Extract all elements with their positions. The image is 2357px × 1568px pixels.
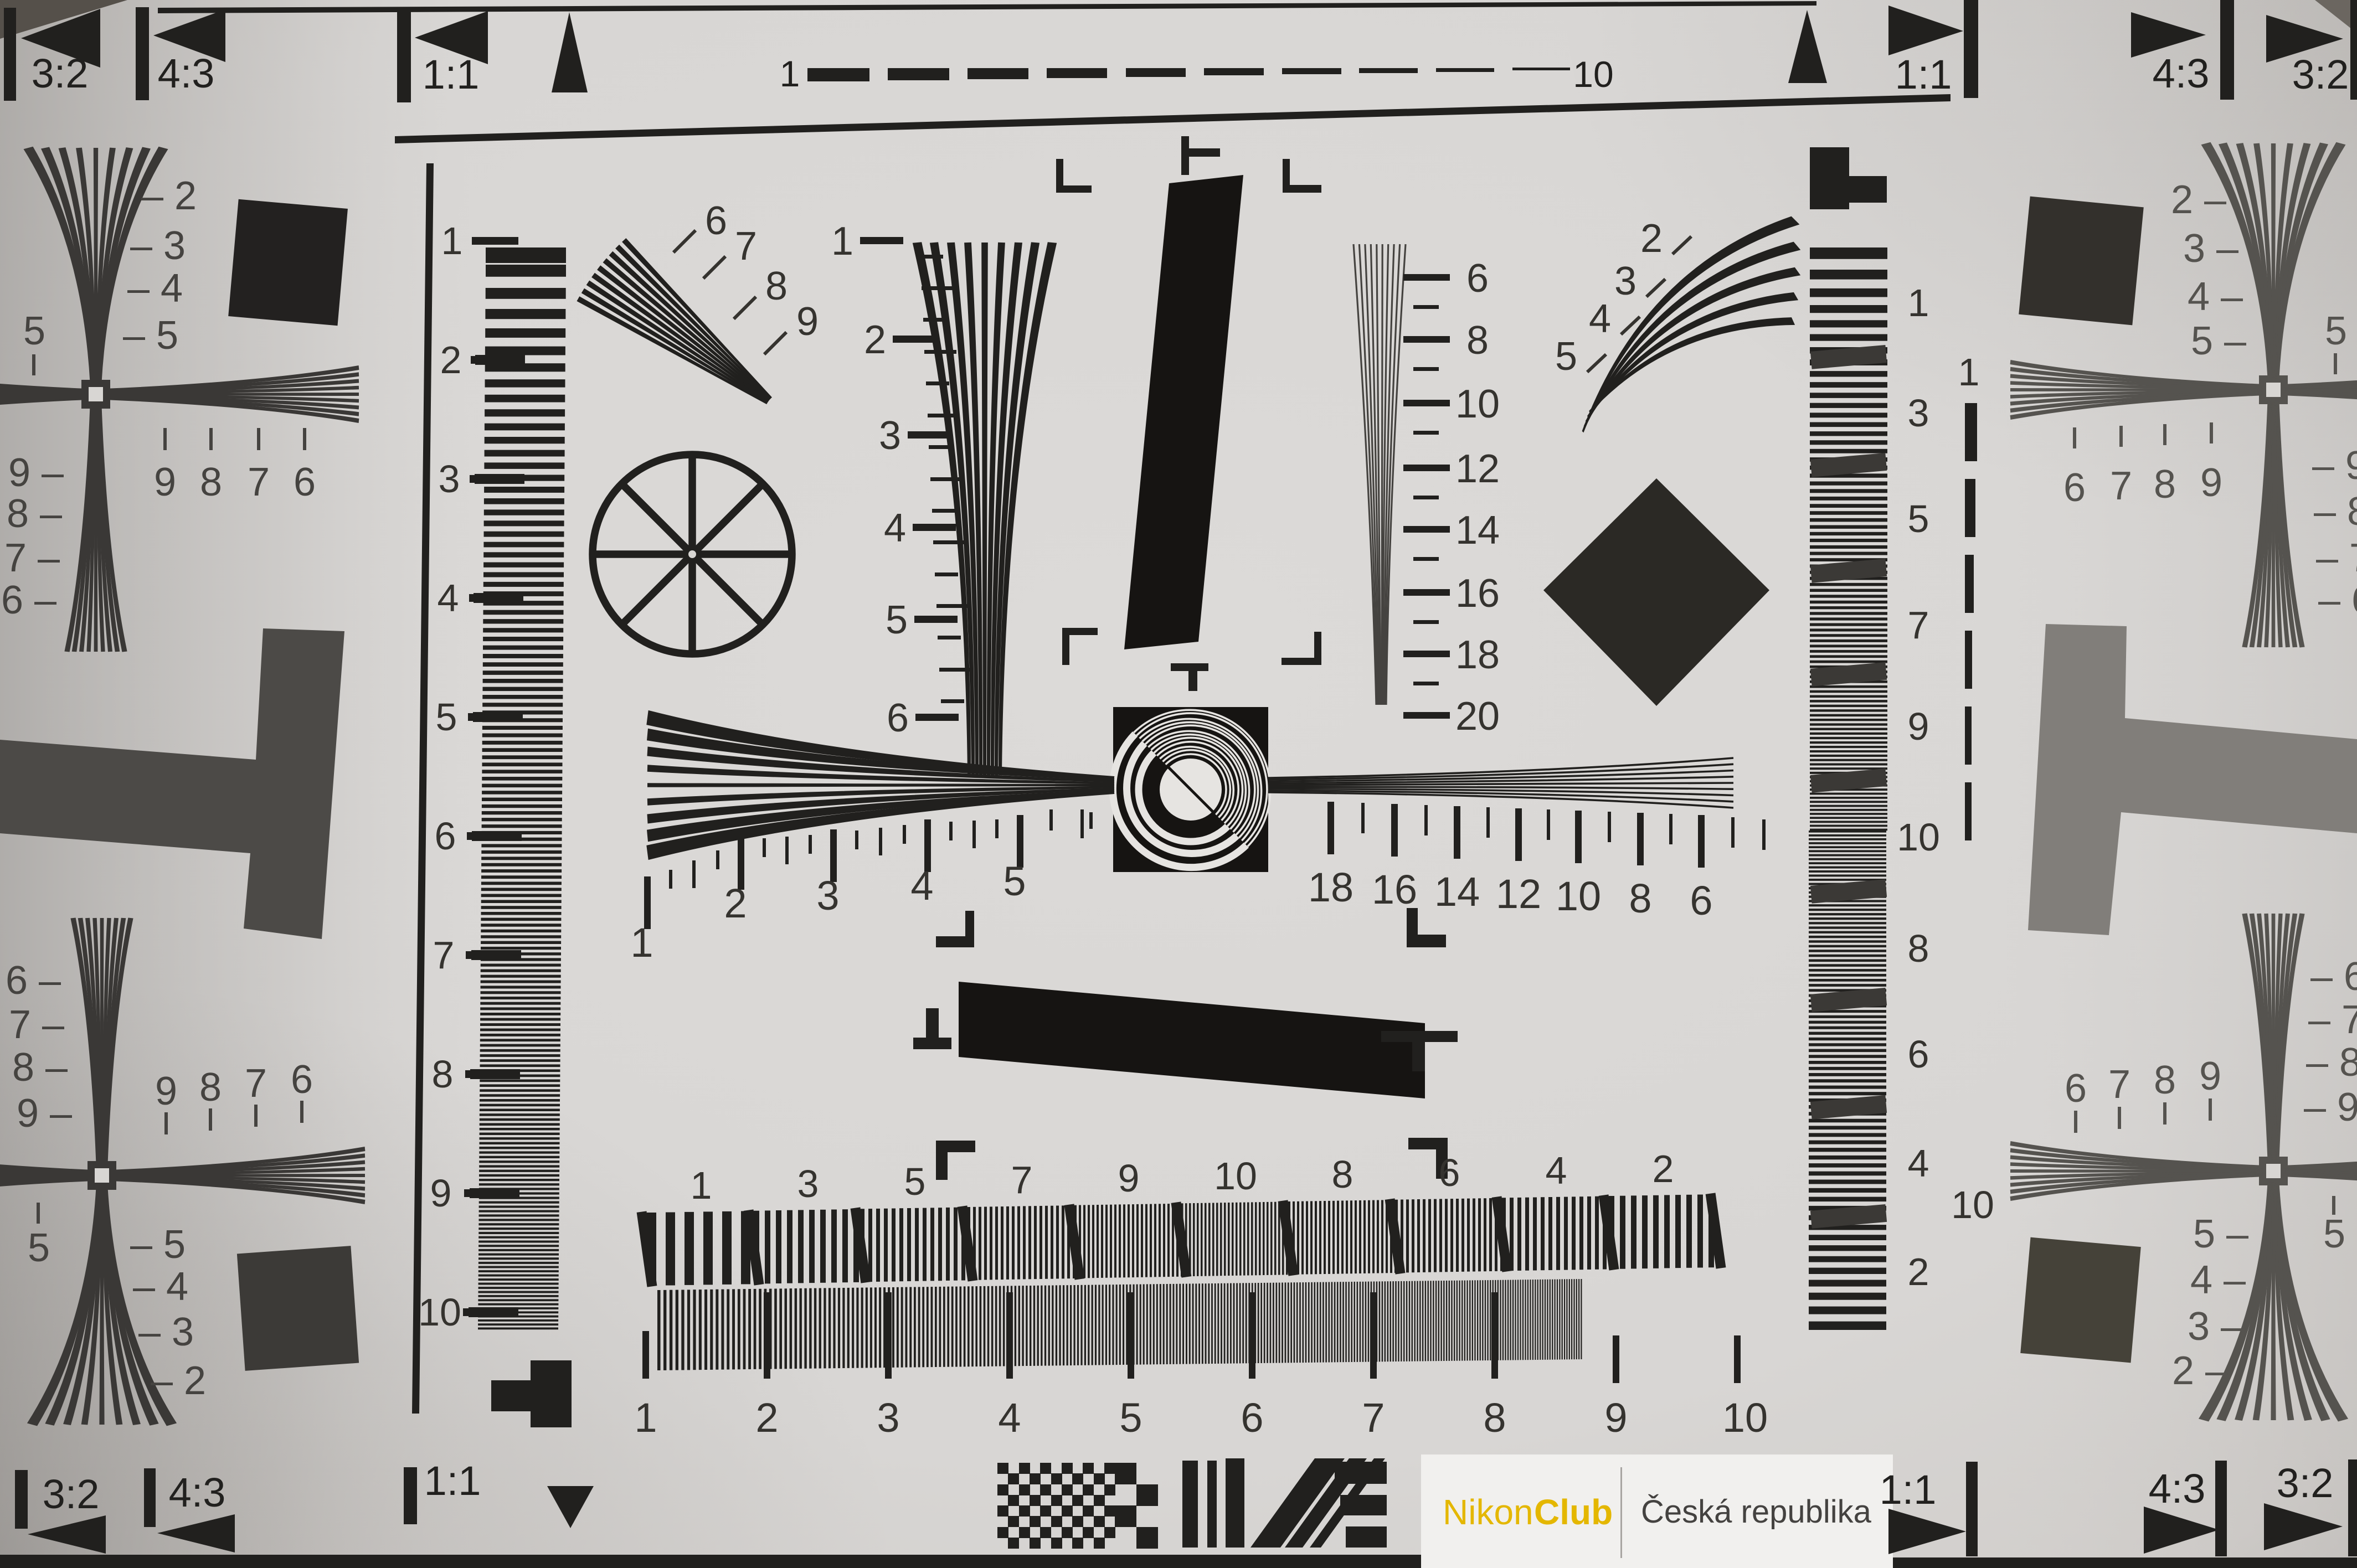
svg-text:20: 20 [1455, 694, 1500, 739]
svg-text:– 6: – 6 [2318, 578, 2357, 622]
svg-text:4:3: 4:3 [2149, 1466, 2206, 1512]
svg-text:– 3: – 3 [130, 224, 186, 268]
svg-text:1: 1 [691, 1164, 712, 1207]
svg-text:– 5: – 5 [123, 313, 178, 358]
svg-text:– 4: – 4 [133, 1265, 188, 1309]
svg-text:9 –: 9 – [17, 1091, 73, 1136]
svg-text:– 8: – 8 [2314, 489, 2357, 534]
svg-text:3:2: 3:2 [32, 50, 89, 96]
svg-text:2 –: 2 – [2172, 1349, 2228, 1393]
svg-text:10: 10 [1951, 1183, 1994, 1226]
svg-text:6: 6 [1439, 1151, 1460, 1194]
svg-text:4: 4 [884, 506, 906, 550]
svg-text:6: 6 [1690, 878, 1712, 924]
svg-text:16: 16 [1372, 866, 1417, 912]
svg-text:5: 5 [904, 1160, 926, 1203]
svg-text:5: 5 [436, 695, 457, 739]
svg-text:4: 4 [1546, 1149, 1567, 1192]
svg-text:8: 8 [2154, 1058, 2176, 1102]
svg-text:9: 9 [1908, 705, 1929, 748]
svg-text:9: 9 [2200, 461, 2222, 505]
svg-text:6: 6 [887, 696, 909, 740]
svg-text:2: 2 [755, 1395, 778, 1441]
svg-text:8: 8 [1908, 927, 1929, 970]
svg-text:5: 5 [886, 598, 908, 642]
svg-text:4:3: 4:3 [2153, 50, 2210, 96]
svg-text:2: 2 [440, 338, 462, 381]
svg-text:6: 6 [291, 1058, 313, 1102]
svg-text:6: 6 [294, 460, 316, 504]
svg-text:2: 2 [724, 880, 747, 926]
svg-text:10: 10 [1455, 382, 1500, 426]
svg-text:9 –: 9 – [8, 451, 64, 495]
svg-text:10: 10 [1573, 54, 1613, 95]
svg-text:7: 7 [245, 1061, 267, 1106]
svg-text:4: 4 [998, 1395, 1021, 1441]
svg-text:– 9: – 9 [2312, 443, 2357, 488]
svg-text:2: 2 [1640, 216, 1663, 261]
svg-text:8: 8 [1466, 318, 1489, 363]
svg-text:16: 16 [1455, 571, 1500, 616]
svg-text:8: 8 [2154, 462, 2176, 507]
svg-text:7: 7 [433, 933, 455, 977]
svg-text:12: 12 [1496, 871, 1541, 917]
svg-text:8 –: 8 – [12, 1045, 68, 1090]
svg-text:Club: Club [1534, 1492, 1613, 1532]
svg-text:5: 5 [2323, 1212, 2345, 1256]
svg-text:6: 6 [2065, 1066, 2087, 1111]
svg-text:5: 5 [1119, 1395, 1142, 1441]
svg-text:– 4: – 4 [127, 266, 183, 311]
svg-text:1: 1 [780, 53, 800, 94]
svg-text:5: 5 [1908, 497, 1929, 540]
svg-text:3: 3 [1614, 259, 1636, 303]
svg-text:10: 10 [1722, 1395, 1768, 1441]
svg-text:– 2: – 2 [151, 1359, 206, 1403]
svg-text:5: 5 [23, 309, 45, 353]
svg-text:– 2: – 2 [141, 174, 197, 218]
svg-text:2 –: 2 – [2171, 178, 2227, 222]
svg-text:– 7: – 7 [2308, 998, 2357, 1042]
svg-text:18: 18 [1308, 864, 1354, 910]
svg-text:3:2: 3:2 [43, 1471, 100, 1517]
svg-text:9: 9 [1604, 1395, 1627, 1441]
svg-text:8: 8 [432, 1053, 454, 1096]
svg-text:10: 10 [1214, 1154, 1257, 1198]
svg-text:8: 8 [1483, 1395, 1506, 1441]
svg-text:3 –: 3 – [2188, 1304, 2243, 1349]
svg-text:10: 10 [418, 1291, 461, 1334]
svg-text:3: 3 [439, 457, 460, 501]
svg-text:3: 3 [816, 873, 839, 919]
svg-text:5 –: 5 – [2191, 319, 2247, 363]
svg-text:Nikon: Nikon [1443, 1492, 1533, 1532]
svg-text:6 –: 6 – [1, 578, 57, 622]
svg-text:10: 10 [1556, 873, 1601, 919]
svg-text:3: 3 [877, 1395, 899, 1441]
svg-text:7 –: 7 – [9, 1003, 65, 1047]
svg-text:9: 9 [796, 300, 819, 344]
svg-text:9: 9 [155, 1069, 177, 1113]
svg-text:3: 3 [797, 1162, 819, 1205]
svg-text:1: 1 [634, 1395, 657, 1441]
svg-text:1:1: 1:1 [1880, 1467, 1937, 1513]
svg-text:4: 4 [910, 863, 933, 909]
svg-text:3 –: 3 – [2183, 226, 2239, 271]
svg-text:4: 4 [438, 576, 459, 620]
svg-text:5: 5 [28, 1226, 50, 1270]
svg-text:6 –: 6 – [6, 958, 61, 1003]
svg-text:6: 6 [435, 814, 456, 858]
svg-text:6: 6 [705, 199, 727, 243]
svg-text:7: 7 [2108, 1062, 2130, 1107]
svg-text:8 –: 8 – [7, 492, 63, 536]
svg-text:3:2: 3:2 [2277, 1460, 2334, 1506]
svg-text:2: 2 [1908, 1250, 1929, 1293]
svg-text:5: 5 [1555, 334, 1577, 379]
svg-text:2: 2 [1653, 1147, 1674, 1190]
svg-text:Česká republika: Česká republika [1641, 1494, 1872, 1530]
svg-text:5 –: 5 – [2193, 1212, 2249, 1256]
svg-text:12: 12 [1455, 447, 1500, 491]
svg-text:1: 1 [1958, 350, 1980, 394]
svg-text:7: 7 [2110, 464, 2132, 508]
svg-text:4:3: 4:3 [158, 50, 215, 96]
svg-text:– 3: – 3 [138, 1310, 194, 1354]
svg-text:14: 14 [1455, 508, 1500, 553]
svg-text:8: 8 [199, 1065, 222, 1110]
svg-text:9: 9 [1118, 1157, 1140, 1200]
svg-text:4 –: 4 – [2190, 1258, 2246, 1302]
svg-text:6: 6 [1466, 256, 1489, 301]
svg-text:4: 4 [1589, 297, 1611, 341]
svg-text:8: 8 [765, 264, 788, 308]
svg-text:– 9: – 9 [2304, 1085, 2357, 1129]
svg-text:10: 10 [1897, 816, 1940, 859]
svg-text:8: 8 [1332, 1153, 1354, 1196]
svg-text:1:1: 1:1 [1895, 51, 1952, 97]
svg-text:1: 1 [441, 219, 463, 262]
svg-text:1: 1 [1908, 281, 1929, 324]
svg-text:3: 3 [1908, 391, 1929, 435]
svg-text:5: 5 [1003, 858, 1026, 904]
svg-text:1: 1 [630, 920, 653, 966]
svg-text:14: 14 [1434, 869, 1480, 915]
svg-text:7 –: 7 – [4, 536, 60, 580]
svg-text:8: 8 [200, 460, 222, 504]
svg-text:– 8: – 8 [2306, 1040, 2357, 1085]
svg-text:8: 8 [1629, 875, 1651, 921]
svg-text:4 –: 4 – [2188, 275, 2243, 319]
svg-text:4:3: 4:3 [169, 1469, 226, 1515]
svg-text:1: 1 [831, 219, 853, 264]
svg-text:7: 7 [735, 224, 757, 269]
svg-text:– 6: – 6 [2310, 955, 2357, 999]
svg-text:– 5: – 5 [130, 1223, 186, 1267]
svg-text:6: 6 [1241, 1395, 1263, 1441]
svg-text:7: 7 [1908, 604, 1929, 647]
svg-text:18: 18 [1455, 633, 1500, 677]
svg-text:9: 9 [2199, 1054, 2221, 1098]
svg-text:7: 7 [1011, 1158, 1033, 1201]
svg-text:4: 4 [1908, 1142, 1929, 1185]
svg-text:3: 3 [879, 414, 901, 458]
svg-text:6: 6 [1908, 1033, 1929, 1076]
svg-text:5: 5 [2325, 309, 2347, 353]
svg-text:– 7: – 7 [2316, 536, 2357, 580]
svg-text:6: 6 [2063, 466, 2086, 510]
svg-text:2: 2 [864, 318, 886, 362]
svg-text:9: 9 [430, 1172, 452, 1215]
svg-text:3:2: 3:2 [2292, 51, 2349, 97]
svg-text:7: 7 [1362, 1395, 1385, 1441]
svg-text:9: 9 [154, 460, 176, 504]
svg-text:7: 7 [248, 460, 270, 504]
svg-text:1:1: 1:1 [423, 51, 480, 97]
svg-text:1:1: 1:1 [424, 1458, 481, 1504]
